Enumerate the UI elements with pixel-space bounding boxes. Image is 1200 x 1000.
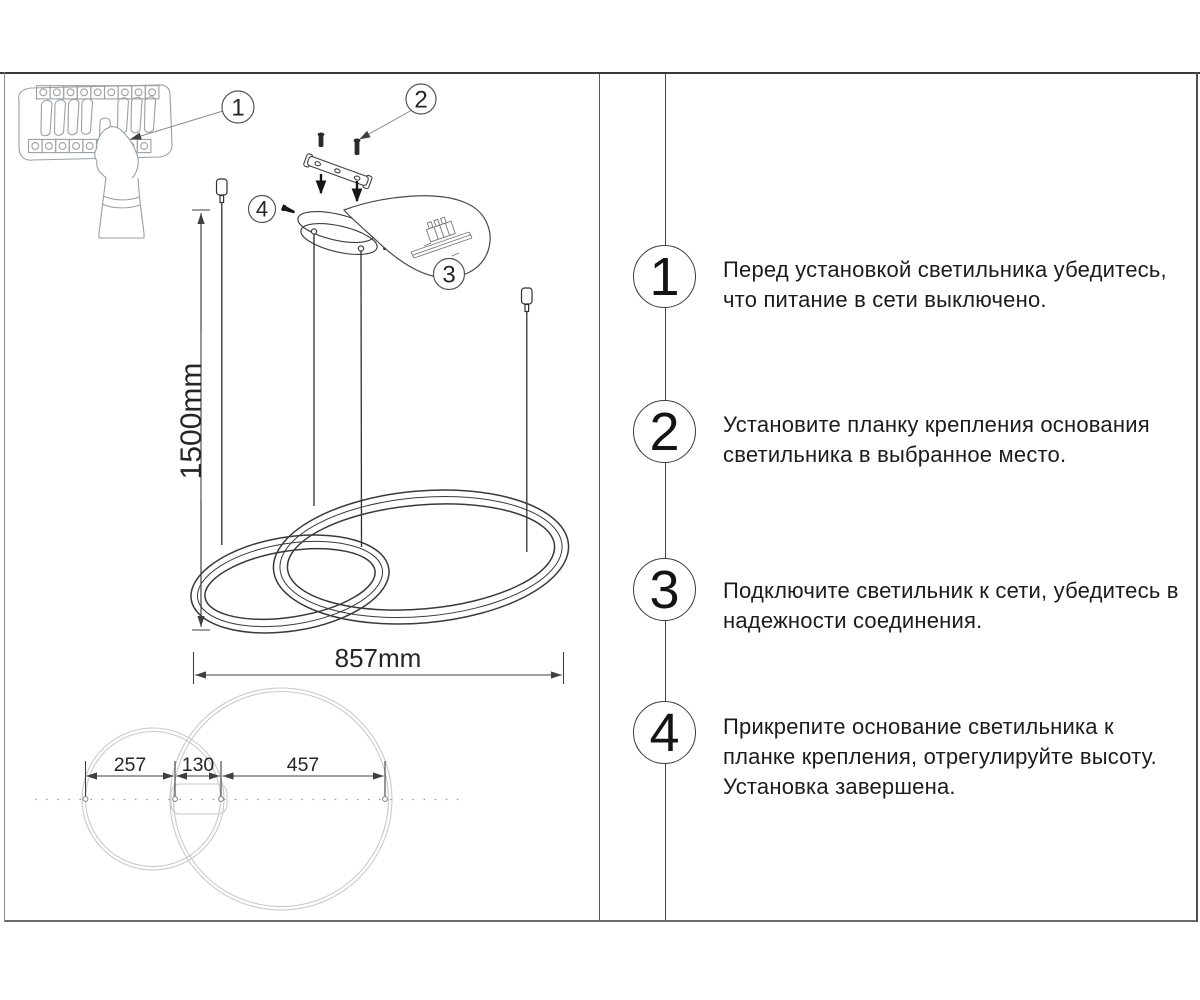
breaker-switch-levers: [41, 97, 156, 139]
mounting-screws: [318, 133, 361, 156]
plan-dim-right-label: 457: [287, 754, 320, 776]
plan-rings: [82, 688, 392, 910]
step-4-text: Прикрепите основание светильника к планк…: [723, 712, 1193, 802]
step-4-line-1: Прикрепите основание светильника к: [723, 712, 1193, 742]
step-2-number-badge: 2: [633, 400, 696, 463]
dimension-width-label: 857mm: [335, 643, 422, 673]
breaker-panel-illustration: [19, 85, 172, 160]
dimension-height-label: 1500mm: [175, 363, 208, 480]
instruction-sheet: { "dimensions": { "drop_height": "1500mm…: [0, 0, 1200, 1000]
step-3-line-2: надежности соединения.: [723, 606, 1193, 636]
step-1-line-1: Перед установкой светильника убедитесь,: [723, 255, 1193, 285]
plan-view: 257 130 457: [35, 688, 463, 910]
ring-small: [184, 522, 396, 646]
mounting-bracket: [303, 153, 372, 189]
step-4-line-3: Установка завершена.: [723, 772, 1193, 802]
step-4-line-2: планке крепления, отрегулируйте высоту.: [723, 742, 1193, 772]
step-3-number: 3: [649, 563, 679, 617]
step-2-line-1: Установите планку крепления основания: [723, 410, 1193, 440]
step-3-text: Подключите светильник к сети, убедитесь …: [723, 576, 1193, 636]
step-1-number: 1: [649, 250, 679, 304]
step-2-number: 2: [649, 405, 679, 459]
wiring-detail-bubble: 3: [344, 196, 490, 290]
step-1-number-badge: 1: [633, 245, 696, 308]
canopy-screw-left-icon: [281, 204, 296, 215]
callout-1-label: 1: [231, 95, 244, 122]
dimension-height: 1500mm: [175, 210, 210, 630]
step-1-text: Перед установкой светильника убедитесь, …: [723, 255, 1193, 315]
plan-dim-center-label: 130: [182, 754, 215, 776]
step-4-number: 4: [649, 706, 679, 760]
callout-3-label: 3: [442, 262, 455, 289]
step-1-line-2: что питание в сети выключено.: [723, 285, 1193, 315]
callout-4: 4: [249, 196, 276, 223]
step-2-text: Установите планку крепления основания св…: [723, 410, 1193, 470]
callout-2: 2: [360, 84, 436, 139]
installation-drawing: 1 2 4: [0, 0, 1200, 1000]
step-2-line-2: светильника в выбранное место.: [723, 440, 1193, 470]
step-3-line-1: Подключите светильник к сети, убедитесь …: [723, 576, 1193, 606]
step-3-number-badge: 3: [633, 558, 696, 621]
step-4-number-badge: 4: [633, 701, 696, 764]
dimension-width: 857mm: [194, 643, 564, 684]
callout-4-label: 4: [256, 197, 268, 222]
plan-dim-left-label: 257: [114, 754, 147, 776]
hand-icon: [95, 127, 144, 238]
callout-2-label: 2: [414, 87, 427, 114]
